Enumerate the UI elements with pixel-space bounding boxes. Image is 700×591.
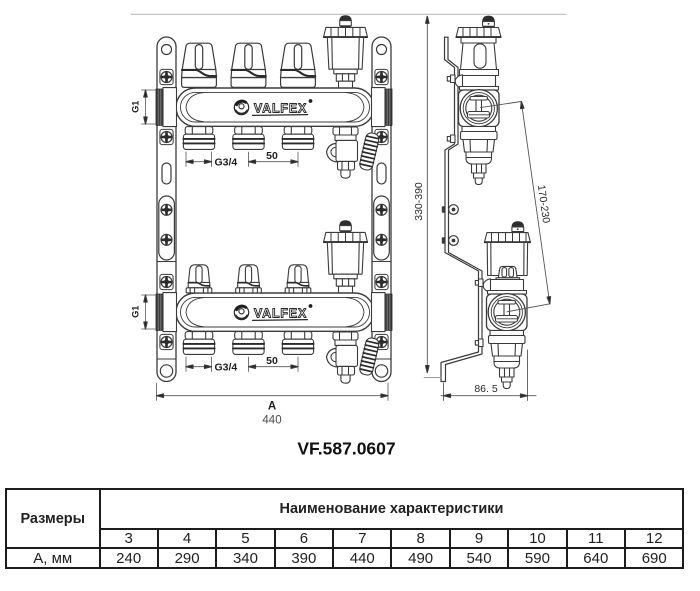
- svg-text:A: A: [268, 401, 276, 413]
- svg-text:86. 5: 86. 5: [474, 383, 498, 395]
- svg-text:VF.587.0607: VF.587.0607: [297, 439, 395, 459]
- svg-text:330-390: 330-390: [413, 182, 425, 221]
- svg-text:G3/4: G3/4: [215, 157, 238, 169]
- svg-text:G1: G1: [131, 101, 141, 113]
- svg-text:50: 50: [266, 150, 278, 162]
- svg-text:440: 440: [262, 415, 281, 427]
- svg-text:VALFEX: VALFEX: [254, 102, 307, 116]
